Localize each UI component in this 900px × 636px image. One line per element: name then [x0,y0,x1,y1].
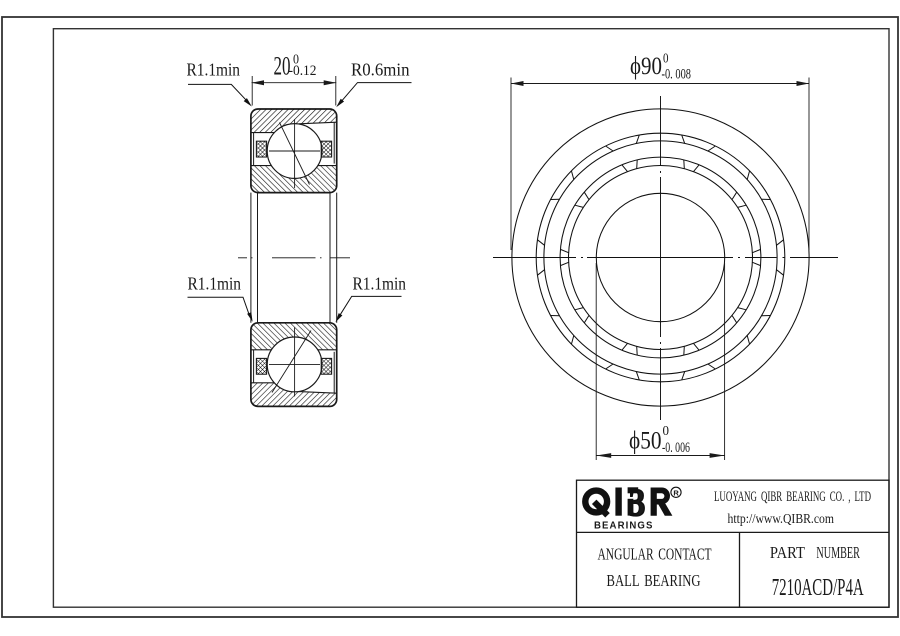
svg-text:0: 0 [663,52,669,67]
svg-text:R1.1min: R1.1min [353,274,407,294]
svg-text:0: 0 [663,424,670,439]
svg-text:http://www.QIBR.com: http://www.QIBR.com [728,512,835,527]
svg-text:PART: PART [770,543,805,562]
svg-text:-0.12: -0.12 [289,63,317,79]
svg-text:ϕ90: ϕ90 [630,53,662,80]
svg-text:ϕ50: ϕ50 [629,428,662,455]
svg-text:-0. 006: -0. 006 [662,440,690,456]
svg-text:BEARINGS: BEARINGS [594,520,654,532]
svg-text:-0. 008: -0. 008 [662,67,692,83]
svg-text:R: R [673,488,679,497]
svg-text:7210ACD/P4A: 7210ACD/P4A [772,574,864,601]
svg-text:LUOYANG QIBR BEARING CO. , LTD: LUOYANG QIBR BEARING CO. , LTD [714,489,871,505]
svg-text:R0.6min: R0.6min [351,60,410,80]
svg-text:BALL BEARING: BALL BEARING [607,571,701,590]
svg-text:NUMBER: NUMBER [816,543,860,562]
svg-text:R1.1min: R1.1min [187,60,241,80]
svg-text:R1.1min: R1.1min [188,274,242,294]
svg-text:ANGULAR CONTACT: ANGULAR CONTACT [598,545,712,564]
